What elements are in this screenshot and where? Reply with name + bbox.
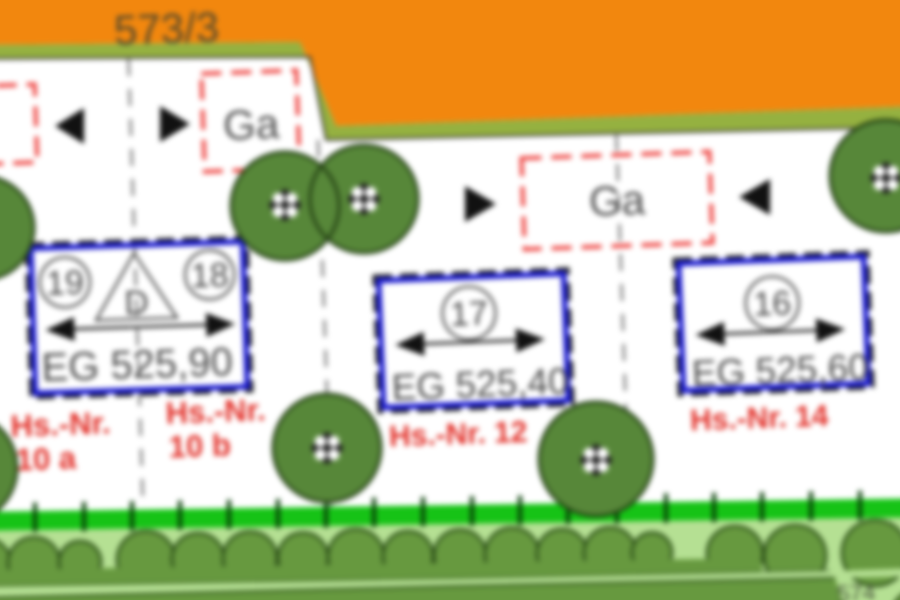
svg-text:574: 574 xyxy=(836,579,876,600)
svg-text:10 b: 10 b xyxy=(168,427,231,464)
svg-text:Hs.-Nr. 12: Hs.-Nr. 12 xyxy=(388,416,527,454)
svg-text:10 a: 10 a xyxy=(15,440,77,477)
svg-text:EG 525,90: EG 525,90 xyxy=(41,340,234,390)
svg-text:17: 17 xyxy=(449,294,488,333)
svg-text:Ga: Ga xyxy=(222,100,280,149)
svg-text:Hs.-Nr.: Hs.-Nr. xyxy=(10,405,111,443)
svg-text:D: D xyxy=(124,284,150,323)
svg-text:18: 18 xyxy=(190,256,229,295)
svg-text:Ga: Ga xyxy=(588,176,646,225)
svg-text:573/3: 573/3 xyxy=(113,3,220,54)
svg-text:16: 16 xyxy=(753,284,792,323)
svg-text:Hs.-Nr. 14: Hs.-Nr. 14 xyxy=(689,400,829,438)
svg-text:Hs.-Nr.: Hs.-Nr. xyxy=(165,392,266,430)
svg-text:EG 525,40: EG 525,40 xyxy=(391,360,569,408)
svg-text:EG 525,60: EG 525,60 xyxy=(691,346,869,394)
svg-text:19: 19 xyxy=(45,264,84,303)
